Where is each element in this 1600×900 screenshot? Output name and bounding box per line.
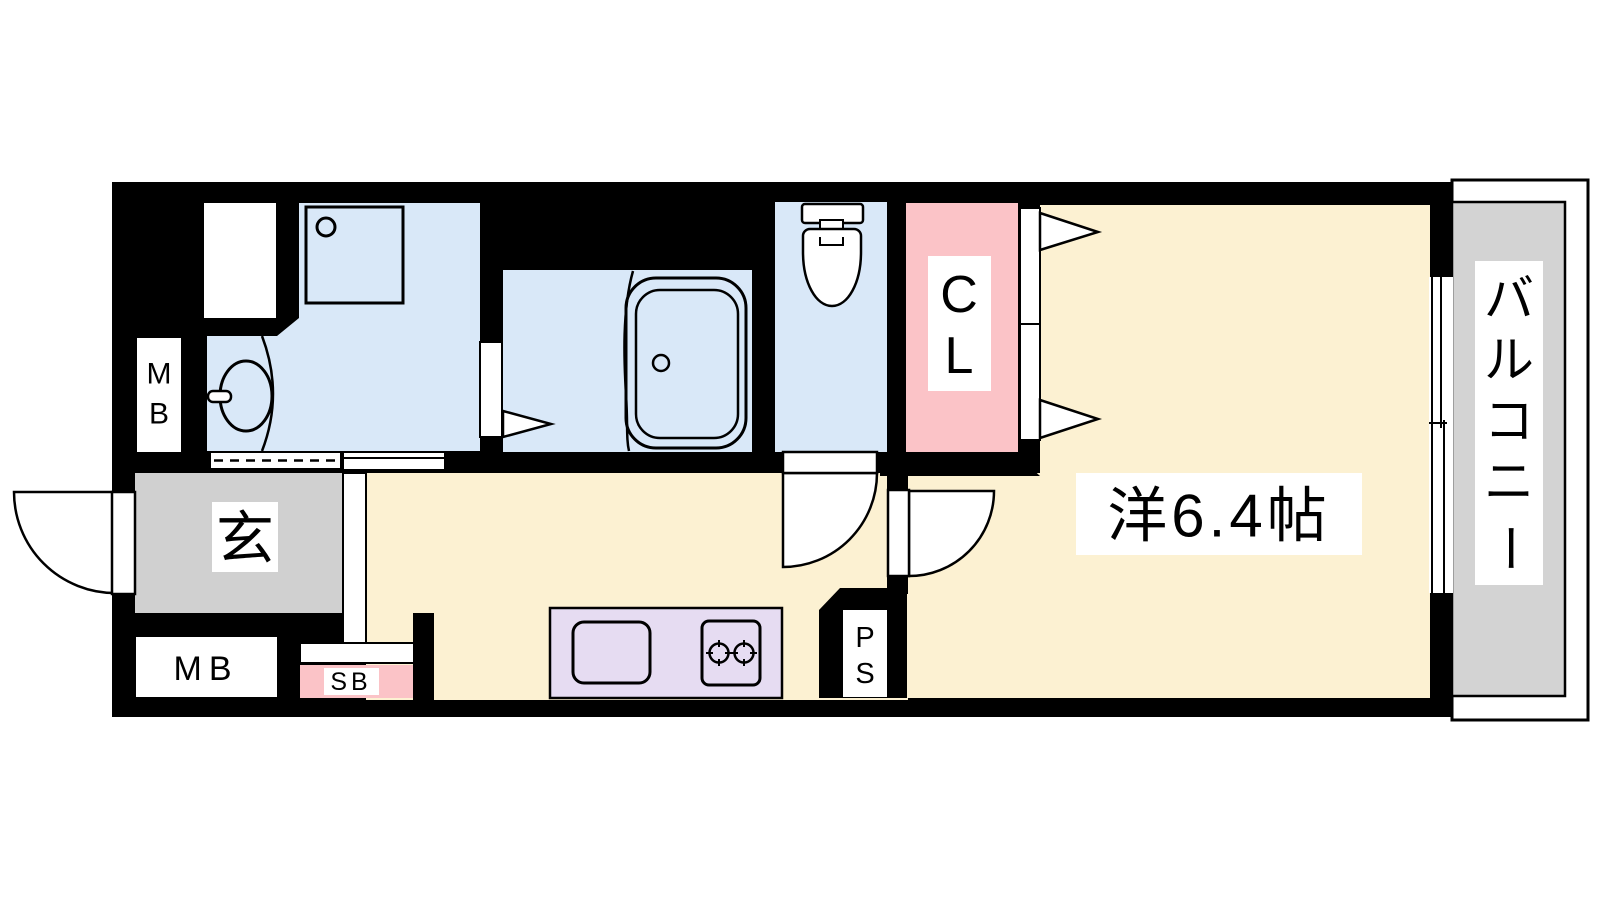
entrance-door (14, 492, 135, 594)
closet-label-c: C (940, 266, 978, 324)
floor-plan-drawing: M B 玄 MB SB P (0, 0, 1600, 900)
meter-box-side-label-m: M (147, 358, 172, 391)
sliding-door-strip (343, 452, 445, 470)
wall-pillar-shoebox (413, 613, 434, 700)
western-room-label-text: 洋6.4帖 (1107, 483, 1330, 550)
balcony-label-char-1: バ (1484, 271, 1534, 327)
closet-label-l: L (945, 327, 974, 385)
room-door-leaf (888, 490, 909, 576)
shoe-box-label: SB (330, 668, 371, 696)
balcony-label-char-3: コ (1484, 393, 1534, 449)
entrance-door-swing (14, 492, 115, 593)
entrance-label-text: 玄 (216, 507, 274, 572)
entrance-partition (343, 473, 366, 643)
sink-faucet-icon (208, 391, 231, 402)
entrance-label: 玄 (212, 502, 278, 572)
shoe-box-counter (300, 643, 414, 663)
pipe-space: P S (843, 610, 887, 697)
balcony-label-char-4: ニ (1484, 454, 1534, 510)
toilet (802, 204, 863, 306)
meter-box-bottom: MB (136, 637, 277, 697)
balcony-window (1429, 277, 1453, 593)
balcony-label-char-2: ル (1484, 332, 1534, 388)
shoe-box: SB (300, 643, 414, 698)
balcony-label: バ ル コ ニ ー (1475, 261, 1543, 585)
meter-box-side: M B (137, 338, 181, 452)
meter-box-side-box (137, 338, 181, 452)
meter-box-bottom-label: MB (174, 650, 239, 688)
pipe-space-label-p: P (855, 622, 874, 654)
floor-plan-page: M B 玄 MB SB P (0, 0, 1600, 900)
closet-label: C L (928, 256, 991, 391)
meter-box-side-label-b: B (149, 398, 169, 431)
entrance-door-leaf (112, 492, 135, 594)
western-room-floor (1040, 205, 1430, 698)
bathroom-door-leaf (480, 342, 502, 437)
kitchen (550, 608, 782, 698)
toilet-door-leaf (783, 452, 877, 473)
entrance-step (210, 452, 341, 469)
washroom-sliding-door (343, 452, 445, 470)
toilet-hinge (820, 220, 843, 229)
storage-niche (204, 203, 276, 318)
closet-door-panel-bottom (1020, 324, 1040, 440)
pipe-space-label-s: S (855, 658, 874, 690)
closet-door-panel-top (1020, 208, 1040, 324)
western-room-label: 洋6.4帖 (1076, 473, 1362, 555)
balcony-label-char-5: ー (1481, 523, 1537, 573)
wall-stub-above-door (887, 452, 908, 491)
entrance-step-strip (210, 452, 341, 469)
